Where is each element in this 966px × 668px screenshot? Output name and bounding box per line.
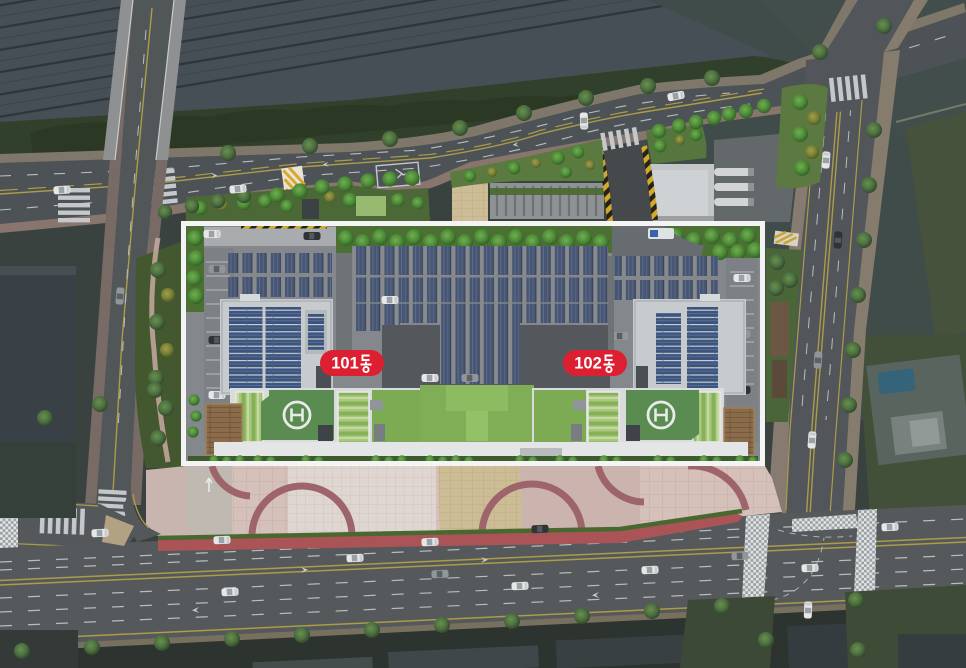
svg-text:101: 101 <box>331 355 359 373</box>
svg-text:102: 102 <box>574 355 602 373</box>
